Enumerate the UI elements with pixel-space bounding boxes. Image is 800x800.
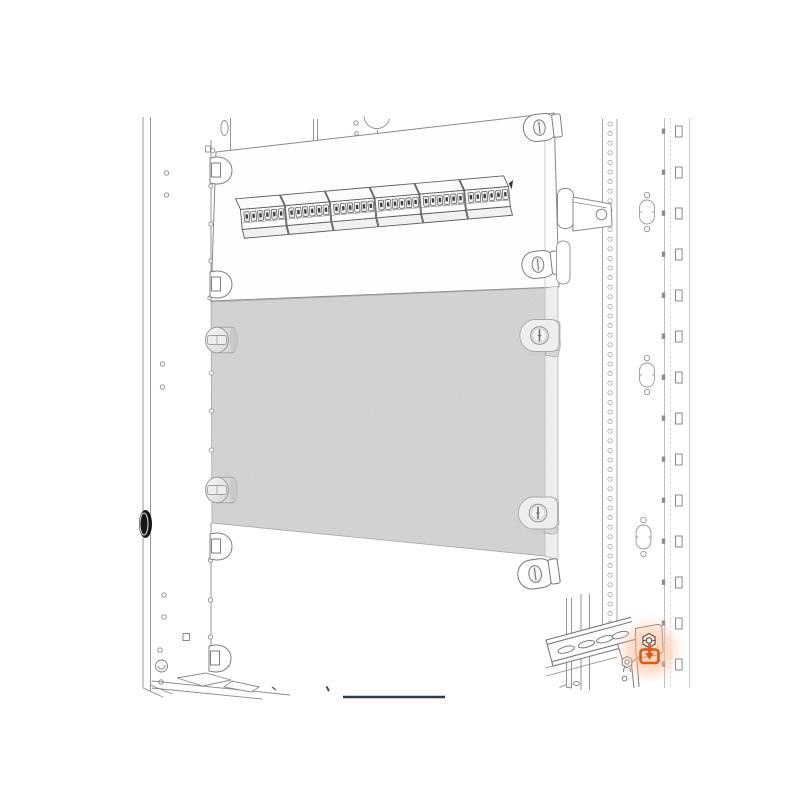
blind-panel [206, 286, 561, 560]
perforation-hole [608, 189, 612, 193]
perforation-hole [608, 583, 612, 587]
terminal-clamp-contact [439, 198, 442, 202]
frame-hole [164, 171, 168, 175]
rail-notch [662, 293, 665, 298]
perforation-hole [608, 266, 612, 270]
perforation-hole [608, 295, 612, 299]
terminal-clamp-contact [497, 193, 500, 197]
perforation-hole [608, 506, 612, 510]
perforation-hole [608, 439, 612, 443]
blind-panel-face [211, 288, 545, 556]
perforation-hole [608, 275, 612, 279]
perforation-hole [608, 602, 612, 606]
perforation-hole [608, 429, 612, 433]
rail-notch [662, 129, 665, 134]
terminal-clamp-contact [273, 212, 276, 216]
perforation-hole [608, 323, 612, 327]
perforation-hole [608, 141, 612, 145]
quarter-turn-knob-bottom-left [206, 477, 239, 503]
rail-notch [662, 375, 665, 380]
perforation-hole [608, 544, 612, 548]
terminal-clamp-contact [356, 205, 359, 209]
perforation-hole [608, 285, 612, 289]
rail-hole [209, 184, 213, 188]
screw-stem [630, 668, 631, 673]
rail-notch [662, 211, 665, 216]
rail-slot [676, 290, 683, 301]
frame-hole [160, 362, 164, 366]
d-lug-slot [212, 539, 221, 553]
rail-slot [676, 208, 683, 219]
rail-slot [676, 372, 683, 383]
perforation-hole [608, 179, 612, 183]
perforation-hole [608, 227, 612, 231]
perforation-hole [608, 362, 612, 366]
terminal-clamp-contact [311, 209, 314, 213]
rail-square-hole [206, 146, 211, 152]
perforation-hole [608, 247, 612, 251]
rail-slot [676, 413, 683, 424]
terminal-clamp-contact [325, 207, 328, 211]
perforation-hole [608, 467, 612, 471]
perforation-hole [608, 237, 612, 241]
terminal-clamp-contact [407, 200, 410, 204]
rail-notch [662, 621, 665, 626]
rail-slot [676, 167, 683, 178]
terminal-clamp-contact [425, 199, 428, 203]
frame-hole [162, 593, 166, 597]
rail-slot [676, 249, 683, 260]
perforation-hole [608, 381, 612, 385]
terminal-clamp-contact [363, 204, 366, 208]
perforation-hole [608, 333, 612, 337]
terminal-clamp-contact [290, 210, 293, 214]
terminal-clamp-contact [349, 205, 352, 209]
quarter-turn-knob-top-left [206, 327, 239, 353]
bracket-hole [622, 676, 627, 681]
frame-hole [160, 385, 164, 389]
terminal-clamp-contact [369, 204, 372, 208]
perforation-hole [608, 419, 612, 423]
frame-hole [158, 648, 162, 652]
terminal-clamp-contact [342, 206, 345, 210]
perforation-hole [608, 371, 612, 375]
screw-stem [624, 668, 625, 673]
rail-hole [208, 598, 212, 602]
terminal-clamp-contact [297, 210, 300, 214]
perforation-hole [608, 131, 612, 135]
rail-notch [662, 170, 665, 175]
perforation-hole [608, 314, 612, 318]
terminal-clamp-contact [414, 200, 417, 204]
rail-hole [209, 222, 213, 226]
terminal-clamp-contact [335, 207, 338, 211]
d-lug-slot [212, 277, 221, 291]
terminal-clamp-contact [245, 214, 248, 218]
terminal-clamp-contact [490, 193, 493, 197]
frame-hole [162, 615, 166, 619]
perforation-hole [608, 352, 612, 356]
rail-slot [676, 331, 683, 342]
d-lug-slot [211, 651, 220, 665]
perforation-hole [608, 151, 612, 155]
fixing-screw-hotspot[interactable] [624, 624, 676, 676]
terminal-clamp-contact [432, 198, 435, 202]
rail-notch [662, 416, 665, 421]
panel-edge-hole [209, 371, 213, 375]
terminal-clamp-contact [452, 197, 455, 201]
rail-hole [208, 635, 212, 639]
perforation-hole [608, 170, 612, 174]
terminal-clamp-contact [445, 197, 448, 201]
terminal-clamp-contact [280, 211, 283, 215]
terminal-clamp-contact [252, 214, 255, 218]
perforation-hole [608, 400, 612, 404]
rail-slot [676, 454, 683, 465]
perforation-hole [608, 487, 612, 491]
perforation-hole [608, 304, 612, 308]
perforation-hole [608, 477, 612, 481]
terminal-clamp-contact [470, 195, 473, 199]
perforation-hole [608, 535, 612, 539]
perforation-hole [608, 611, 612, 615]
terminal-clamp-contact [476, 194, 479, 198]
perforation-hole [608, 160, 612, 164]
panel-side-slot [557, 241, 571, 284]
rail-slot [676, 618, 683, 629]
terminal-clamp-contact [504, 192, 507, 196]
rail-notch [662, 580, 665, 585]
terminal-clamp-contact [483, 194, 486, 198]
perforation-hole [608, 515, 612, 519]
perforation-hole [608, 496, 612, 500]
terminal-clamp-contact [387, 202, 390, 206]
perforation-hole [608, 592, 612, 596]
terminal-clamp-contact [459, 196, 462, 200]
terminal-clamp-contact [318, 208, 321, 212]
perforation-hole [608, 256, 612, 260]
rail-notch [662, 539, 665, 544]
perforation-hole [608, 410, 612, 414]
enclosure-illustration [0, 0, 800, 800]
perforation-hole [608, 122, 612, 126]
arm-hole [596, 209, 607, 220]
terminal-clamp-contact [266, 212, 269, 216]
perforation-hole [608, 448, 612, 452]
illustration-canvas [0, 0, 800, 800]
terminal-clamp-contact [401, 201, 404, 205]
panel-edge-hole [209, 448, 213, 452]
d-lug-slot [212, 163, 221, 177]
panel-edge-hole [209, 409, 213, 413]
rail-slot [676, 126, 683, 137]
terminal-clamp-contact [380, 203, 383, 207]
frame-hole [164, 193, 168, 197]
grommet [156, 660, 168, 672]
perforation-hole [608, 563, 612, 567]
rail-notch [662, 334, 665, 339]
rail-notch [662, 457, 665, 462]
perforation-hole [608, 554, 612, 558]
terminal-clamp-contact [259, 213, 262, 217]
terminal-clamp-contact [394, 202, 397, 206]
perforation-hole [608, 391, 612, 395]
rail-notch [662, 498, 665, 503]
perforation-hole [608, 458, 612, 462]
rail-slot [676, 536, 683, 547]
terminal-clamp-contact [304, 209, 307, 213]
rail-slot [676, 495, 683, 506]
perforation-hole [608, 199, 612, 203]
frame-square-hole [183, 634, 190, 641]
rail-slot [676, 577, 683, 588]
arm-bracket [558, 189, 574, 229]
perforation-hole [608, 573, 612, 577]
rail-slot [676, 659, 683, 670]
perforation-hole [608, 343, 612, 347]
perforation-hole [608, 525, 612, 529]
rail-notch [662, 252, 665, 257]
